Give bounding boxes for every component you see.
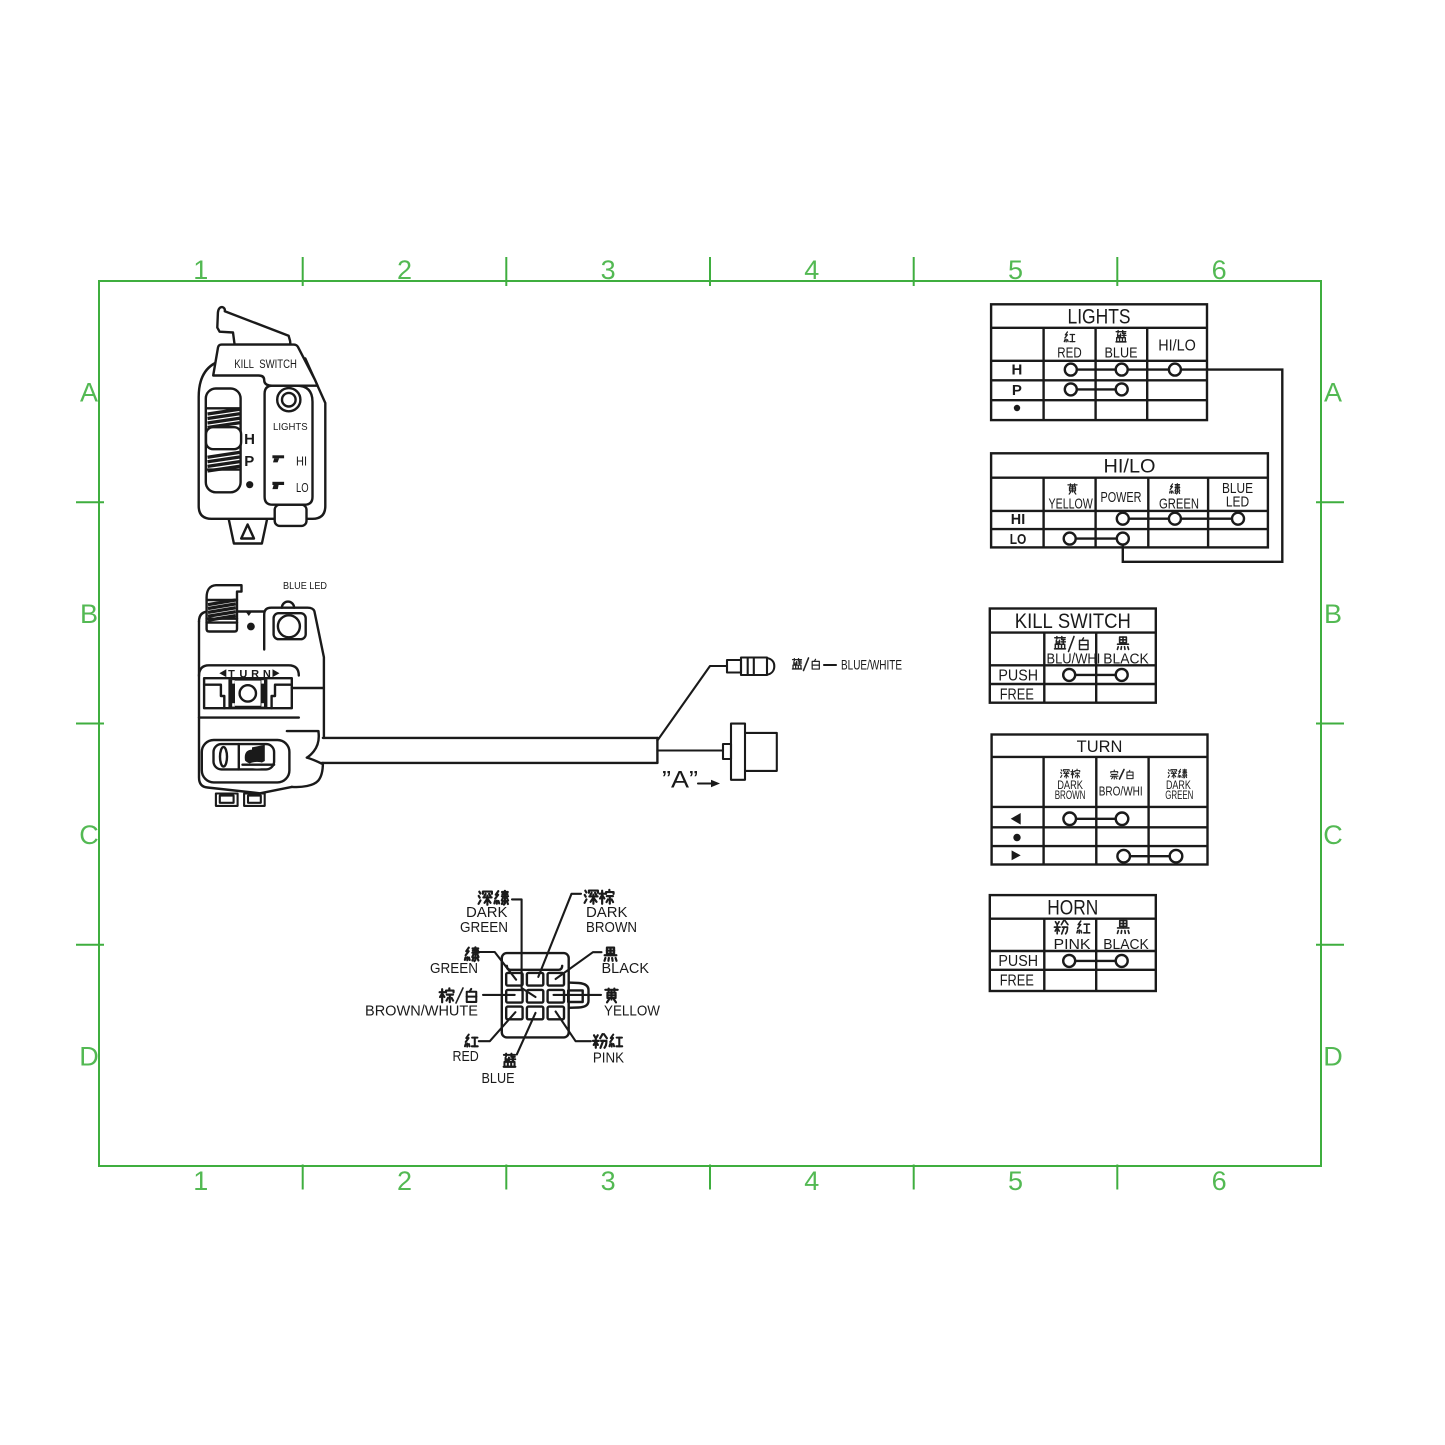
- svg-text:GREEN: GREEN: [460, 919, 508, 936]
- svg-text:B: B: [1324, 599, 1342, 629]
- svg-text:H: H: [1011, 362, 1022, 379]
- svg-text:POWER: POWER: [1101, 489, 1142, 506]
- svg-text:LIGHTS: LIGHTS: [1068, 306, 1131, 329]
- svg-text:LIGHTS: LIGHTS: [273, 422, 308, 433]
- svg-text:PINK: PINK: [1054, 936, 1091, 953]
- svg-text:5: 5: [1008, 255, 1023, 285]
- svg-text:BLACK: BLACK: [602, 960, 650, 977]
- svg-text:BLUE: BLUE: [482, 1070, 515, 1087]
- svg-text:LED: LED: [1226, 494, 1249, 511]
- svg-text:HI: HI: [296, 454, 307, 469]
- svg-text:4: 4: [804, 255, 819, 285]
- svg-text:D: D: [79, 1041, 99, 1071]
- svg-text:BROWN/WHUTE: BROWN/WHUTE: [365, 1003, 478, 1020]
- svg-text:3: 3: [601, 1166, 616, 1196]
- svg-text:6: 6: [1212, 1166, 1227, 1196]
- svg-text:C: C: [1323, 820, 1343, 850]
- svg-text:LO: LO: [296, 480, 309, 495]
- svg-text:BLACK: BLACK: [1103, 936, 1148, 953]
- svg-text:BLACK: BLACK: [1103, 651, 1148, 668]
- svg-text:HI/LO: HI/LO: [1158, 337, 1196, 354]
- svg-text:4: 4: [804, 1166, 819, 1196]
- svg-text:A: A: [80, 378, 98, 408]
- svg-text:2: 2: [397, 255, 412, 285]
- svg-text:FREE: FREE: [1000, 686, 1034, 703]
- svg-text:KILL SWITCH: KILL SWITCH: [1015, 610, 1131, 633]
- svg-text:”A”: ”A”: [662, 767, 698, 794]
- svg-text:PUSH: PUSH: [998, 953, 1038, 970]
- svg-text:BLUE: BLUE: [1105, 345, 1138, 362]
- svg-text:FREE: FREE: [1000, 973, 1034, 990]
- svg-text:GREEN: GREEN: [1165, 790, 1193, 802]
- svg-text:HORN: HORN: [1047, 897, 1098, 920]
- svg-text:BLU/WHI: BLU/WHI: [1047, 651, 1101, 668]
- svg-text:YELLOW: YELLOW: [604, 1003, 661, 1020]
- svg-text:5: 5: [1008, 1166, 1023, 1196]
- svg-text:P: P: [1012, 382, 1022, 399]
- svg-text:D: D: [1323, 1041, 1343, 1071]
- svg-text:BROWN: BROWN: [1055, 790, 1086, 802]
- svg-text:1: 1: [193, 255, 208, 285]
- svg-text:RED: RED: [1057, 345, 1082, 362]
- svg-text:HI/LO: HI/LO: [1104, 456, 1156, 477]
- svg-text:GREEN: GREEN: [430, 960, 478, 977]
- svg-text:BLUE LED: BLUE LED: [283, 580, 327, 592]
- svg-text:P: P: [244, 453, 254, 470]
- svg-text:KILL SWITCH: KILL SWITCH: [234, 359, 297, 371]
- svg-text:BRO/WHI: BRO/WHI: [1099, 785, 1143, 799]
- svg-text:PUSH: PUSH: [998, 667, 1038, 684]
- svg-text:PINK: PINK: [593, 1050, 624, 1067]
- svg-text:A: A: [1324, 378, 1342, 408]
- svg-text:H: H: [244, 431, 255, 448]
- svg-text:YELLOW: YELLOW: [1049, 496, 1094, 513]
- svg-text:2: 2: [397, 1166, 412, 1196]
- svg-text:B: B: [80, 599, 98, 629]
- svg-text:BLUE/WHITE: BLUE/WHITE: [841, 657, 902, 672]
- svg-text:RED: RED: [453, 1048, 479, 1065]
- svg-text:1: 1: [193, 1166, 208, 1196]
- svg-text:BROWN: BROWN: [586, 919, 637, 936]
- svg-text:HI: HI: [1011, 511, 1025, 528]
- svg-text:GREEN: GREEN: [1159, 496, 1199, 513]
- svg-text:TURN: TURN: [1077, 737, 1123, 756]
- svg-text:C: C: [79, 820, 99, 850]
- svg-text:3: 3: [601, 255, 616, 285]
- svg-text:LO: LO: [1010, 531, 1027, 548]
- svg-text:6: 6: [1212, 255, 1227, 285]
